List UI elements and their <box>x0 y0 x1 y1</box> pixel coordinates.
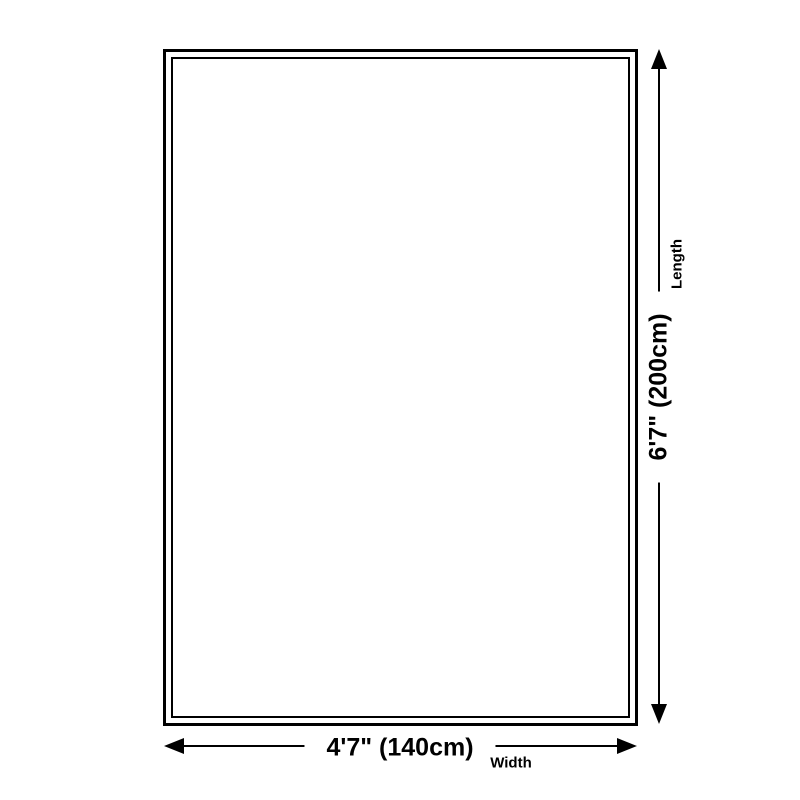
length-label: Length <box>668 231 685 297</box>
width-value: 4'7" (140cm) <box>304 734 495 763</box>
product-outline <box>163 49 638 726</box>
width-label: Width <box>482 754 540 771</box>
product-outline-inner-border <box>171 57 630 718</box>
arrow-down-icon <box>651 704 667 724</box>
length-value: 6'7" (200cm) <box>645 291 674 482</box>
arrow-right-icon <box>617 738 637 754</box>
dimension-diagram: Length 6'7" (200cm) 4'7" (140cm) Width <box>0 0 800 800</box>
